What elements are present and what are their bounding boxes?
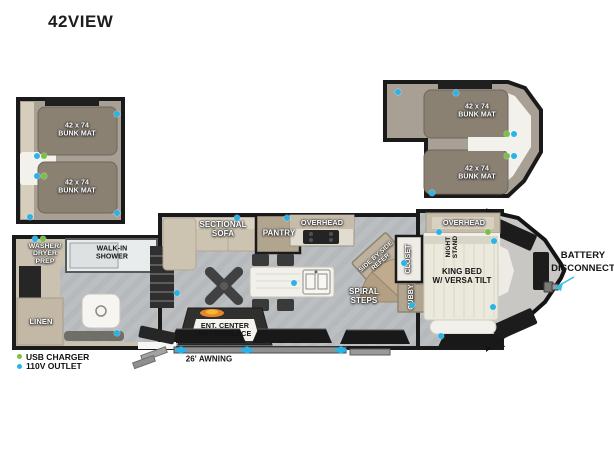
bunk-mat <box>38 107 117 155</box>
outlet-110v-dot <box>491 238 497 244</box>
floorplan-page: 42VIEW 42 x 74 BUNK MAT 42 x 74 BUNK MAT… <box>0 0 614 460</box>
outlet-110v-dot <box>27 214 33 220</box>
main-floorplan <box>14 211 574 369</box>
toilet <box>82 294 120 328</box>
kitchen-counter <box>290 215 354 246</box>
outlet-110v-dot <box>114 210 120 216</box>
outlet-110v-dot <box>234 215 240 221</box>
closet <box>396 236 422 282</box>
bathroom <box>14 237 160 348</box>
outlet-110v-dot <box>511 153 517 159</box>
outlet-110v-dot <box>490 304 496 310</box>
loft-left-tv <box>45 97 99 106</box>
110v-outlet-icon <box>17 364 22 369</box>
outlet-110v-dot <box>284 215 290 221</box>
floorplan-drawing <box>0 0 614 460</box>
legend: USB CHARGER 110V OUTLET <box>17 352 89 371</box>
window <box>340 330 410 344</box>
usb-charger-dot <box>41 153 47 159</box>
outlet-110v-dot <box>401 260 407 266</box>
outlet-110v-dot <box>436 229 442 235</box>
usb-charger-icon <box>17 354 22 359</box>
outlet-110v-dot <box>438 333 444 339</box>
outlet-110v-dot <box>511 131 517 137</box>
usb-charger-dot <box>504 153 510 159</box>
outlet-110v-dot <box>409 302 415 308</box>
loft-right-walkway <box>468 137 516 151</box>
page-title: 42VIEW <box>48 12 113 32</box>
bunk-loft-right <box>385 80 541 196</box>
bunk-mat <box>424 90 508 138</box>
bed-bench <box>430 320 496 334</box>
chair <box>277 299 294 311</box>
outlet-110v-dot <box>291 280 297 286</box>
window <box>170 329 246 343</box>
loft-right-tv <box>438 80 492 89</box>
bunk-mat <box>424 150 508 194</box>
outlet-110v-dot <box>32 236 38 242</box>
chair <box>252 254 269 266</box>
110v-outlet-legend-label: 110V OUTLET <box>26 361 82 371</box>
king-bed <box>424 240 498 320</box>
linen-cabinet <box>17 298 63 345</box>
usb-charger-dot <box>485 229 491 235</box>
outlet-110v-dot <box>174 290 180 296</box>
outlet-110v-dot <box>114 330 120 336</box>
outlet-110v-dot <box>34 153 40 159</box>
window <box>438 334 505 347</box>
chair <box>277 254 294 266</box>
outlet-110v-dot <box>453 90 459 96</box>
outlet-110v-dot <box>114 111 120 117</box>
stove <box>303 230 339 244</box>
usb-charger-dot <box>504 131 510 137</box>
outlet-110v-dot <box>429 190 435 196</box>
usb-charger-dot <box>40 236 46 242</box>
bunk-loft-left <box>18 97 123 222</box>
window <box>252 329 332 343</box>
usb-charger-legend-label: USB CHARGER <box>26 352 89 362</box>
outlet-110v-dot <box>34 173 40 179</box>
bunk-mat <box>38 162 117 213</box>
usb-charger-dot <box>41 173 47 179</box>
outlet-110v-dot <box>395 89 401 95</box>
